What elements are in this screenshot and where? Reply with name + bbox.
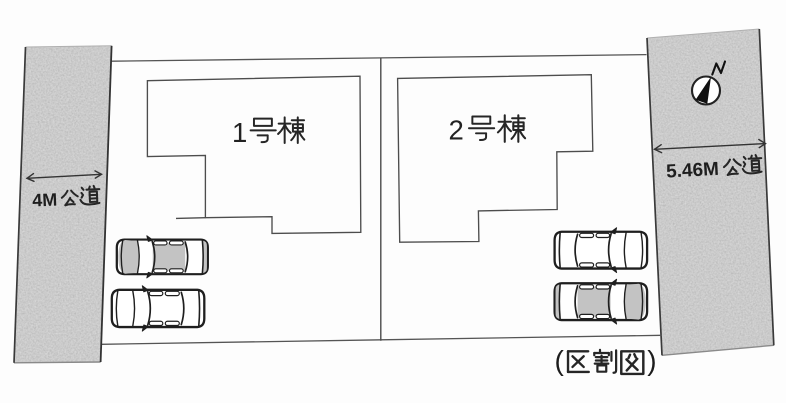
svg-text:): ) [647,345,656,376]
svg-text:1: 1 [232,117,247,148]
svg-text:4M: 4M [32,190,58,211]
svg-text:5.46M: 5.46M [666,159,720,183]
svg-text:(: ( [555,345,565,376]
svg-text:2: 2 [449,115,464,146]
